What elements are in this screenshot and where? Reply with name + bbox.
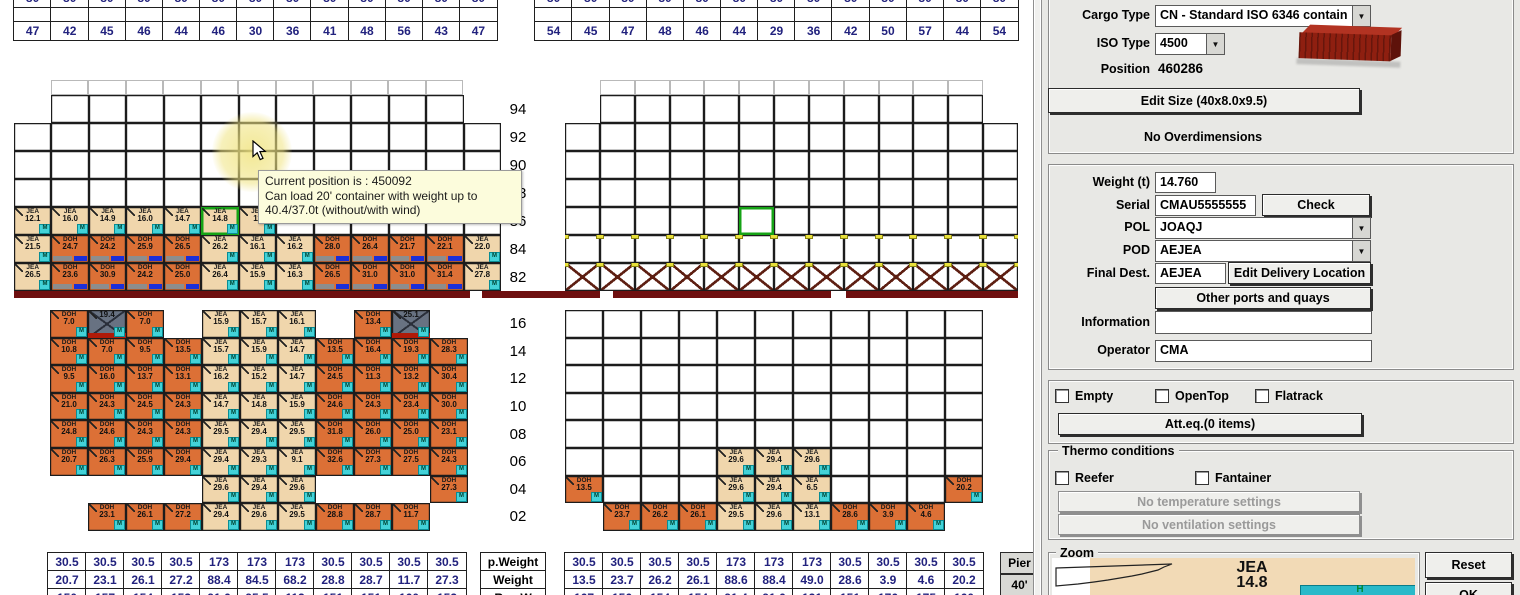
bay-cell[interactable] [907,448,945,476]
bay-cell[interactable] [641,476,679,504]
container-cell[interactable]: DOH13.1M [164,365,202,393]
bay-cell[interactable] [831,420,869,448]
bay-cell[interactable] [831,476,869,504]
selected-bay-cell[interactable] [739,207,774,235]
bay-cell[interactable] [844,179,879,207]
bay-cell[interactable] [948,179,983,207]
container-cell[interactable]: JEA15.7M [240,310,278,338]
container-cell[interactable]: DOH19.3M [392,338,430,366]
bay-cell[interactable] [314,123,351,151]
bay-cell[interactable] [879,123,914,151]
bay-cell[interactable] [879,207,914,235]
container-cell[interactable]: DOH26.2M [641,503,679,531]
bay-cell[interactable] [844,95,879,123]
container-cell[interactable]: JEA15.9M [202,310,240,338]
bay-cell[interactable] [739,123,774,151]
container-cell[interactable]: DOH27.3M [354,448,392,476]
container-cell[interactable]: 19.4M [88,310,126,338]
bay-cell[interactable] [844,235,879,263]
container-cell[interactable]: DOH29.4M [164,448,202,476]
bay-cell[interactable] [89,123,126,151]
container-cell[interactable]: JEA14.7M [278,338,316,366]
container-cell[interactable]: DOH13.5M [164,338,202,366]
selected-bay-cell[interactable]: JEA14.8M [201,207,238,235]
bay-cell[interactable] [670,151,705,179]
bay-cell[interactable] [14,123,51,151]
opentop-checkbox[interactable] [1155,389,1169,403]
bay-cell[interactable] [869,338,907,366]
bay-cell[interactable] [913,263,948,291]
container-cell[interactable]: 25.1M [392,310,430,338]
bay-cell[interactable] [679,338,717,366]
bay-cell[interactable] [755,310,793,338]
container-cell[interactable]: JEA16.3M [276,263,313,291]
container-cell[interactable]: DOH16.4M [354,338,392,366]
bay-cell[interactable] [983,151,1018,179]
bay-cell[interactable] [793,365,831,393]
container-cell[interactable]: DOH24.6M [88,420,126,448]
container-cell[interactable]: JEA9.1M [278,448,316,476]
container-cell[interactable]: DOH7.0M [88,338,126,366]
bay-cell[interactable] [679,393,717,421]
bay-cell[interactable] [670,123,705,151]
bay-cell[interactable] [879,179,914,207]
bay-cell[interactable] [426,123,463,151]
container-cell[interactable]: DOH16.0M [88,365,126,393]
bay-cell[interactable] [51,123,88,151]
container-cell[interactable]: JEA29.4M [240,476,278,504]
container-cell[interactable]: DOH4.6M [907,503,945,531]
container-cell[interactable]: JEA16.2M [202,365,240,393]
bay-cell[interactable] [793,338,831,366]
bay-cell[interactable] [603,476,641,504]
operator-input[interactable]: CMA [1155,340,1372,362]
container-cell[interactable]: DOH28.0 [314,235,351,263]
bay-cell[interactable] [869,420,907,448]
container-cell[interactable]: DOH26.5 [164,235,201,263]
bay-cell[interactable] [635,123,670,151]
bay-cell[interactable] [983,123,1018,151]
container-cell[interactable]: DOH24.3M [354,393,392,421]
bay-cell[interactable] [945,448,983,476]
bay-cell[interactable] [809,95,844,123]
bay-cell[interactable] [51,179,88,207]
bay-cell[interactable] [603,420,641,448]
bay-cell[interactable] [844,263,879,291]
bay-cell[interactable] [907,420,945,448]
bay-cell[interactable] [913,207,948,235]
bay-cell[interactable] [739,179,774,207]
bay-cell[interactable] [126,179,163,207]
bay-cell[interactable] [983,207,1018,235]
bay-cell[interactable] [565,263,600,291]
weight-input[interactable]: 14.760 [1155,172,1216,193]
container-cell[interactable]: JEA14.9M [89,207,126,235]
container-cell[interactable]: JEA29.5M [278,420,316,448]
bay-cell[interactable] [774,151,809,179]
container-cell[interactable]: DOH25.0 [164,263,201,291]
bay-cell[interactable] [879,263,914,291]
container-cell[interactable]: JEA29.6M [717,448,755,476]
flatrack-checkbox[interactable] [1255,389,1269,403]
bay-cell[interactable] [983,263,1018,291]
bay-cell[interactable] [164,95,201,123]
bay-cell[interactable] [831,448,869,476]
bay-cell[interactable] [793,310,831,338]
bay-cell[interactable] [89,151,126,179]
bay-cell[interactable] [600,207,635,235]
container-cell[interactable]: DOH30.0M [430,393,468,421]
bay-cell[interactable] [809,207,844,235]
serial-input[interactable]: CMAU5555555 [1155,195,1256,216]
bay-cell[interactable] [641,420,679,448]
container-cell[interactable]: DOH10.8M [50,338,88,366]
container-cell[interactable]: JEA26.4M [201,263,238,291]
bay-cell[interactable] [14,179,51,207]
bay-cell[interactable] [679,448,717,476]
container-cell[interactable]: JEA29.4M [755,448,793,476]
container-cell[interactable]: DOH20.2M [945,476,983,504]
container-cell[interactable]: DOH11.7M [392,503,430,531]
bay-cell[interactable] [755,393,793,421]
container-cell[interactable]: JEA15.2M [240,365,278,393]
container-cell[interactable]: JEA29.4M [202,448,240,476]
bay-cell[interactable] [945,393,983,421]
bay-cell[interactable] [717,365,755,393]
container-cell[interactable]: DOH30.4M [430,365,468,393]
container-cell[interactable]: DOH25.9 [126,235,163,263]
container-cell[interactable]: DOH26.4 [351,235,388,263]
bay-cell[interactable] [603,365,641,393]
bay-cell[interactable] [907,476,945,504]
bay-cell[interactable] [351,95,388,123]
bay-cell[interactable] [844,151,879,179]
container-cell[interactable]: JEA29.6M [278,476,316,504]
bay-cell[interactable] [314,95,351,123]
bay-cell[interactable] [635,151,670,179]
container-cell[interactable]: DOH26.3M [88,448,126,476]
fantainer-checkbox[interactable] [1195,471,1209,485]
bay-cell[interactable] [565,338,603,366]
container-cell[interactable]: JEA15.7M [202,338,240,366]
bay-cell[interactable] [869,365,907,393]
bay-cell[interactable] [600,151,635,179]
bay-cell[interactable] [913,95,948,123]
bay-cell[interactable] [879,151,914,179]
bay-cell[interactable] [717,420,755,448]
bay-cell[interactable] [276,95,313,123]
container-cell[interactable]: DOH31.8M [316,420,354,448]
bay-cell[interactable] [755,420,793,448]
bay-cell[interactable] [600,263,635,291]
bay-cell[interactable] [679,476,717,504]
bay-cell[interactable] [831,338,869,366]
bay-cell[interactable] [948,123,983,151]
bay-cell[interactable] [774,123,809,151]
container-cell[interactable]: DOH22.1 [426,235,463,263]
container-cell[interactable]: JEA12.1M [14,207,51,235]
container-cell[interactable]: DOH26.5 [314,263,351,291]
edit-delivery-location-button[interactable]: Edit Delivery Location [1228,262,1371,284]
container-cell[interactable]: DOH31.0 [351,263,388,291]
information-input[interactable] [1155,311,1372,334]
reset-button[interactable]: Reset [1425,552,1512,578]
bay-cell[interactable] [948,263,983,291]
bay-cell[interactable] [831,310,869,338]
bay-cell[interactable] [600,95,635,123]
bay-cell[interactable] [869,393,907,421]
container-cell[interactable]: JEA26.5M [14,263,51,291]
container-cell[interactable]: DOH24.8M [50,420,88,448]
container-cell[interactable]: DOH21.0M [50,393,88,421]
bay-cell[interactable] [641,393,679,421]
bay-cell[interactable] [603,448,641,476]
container-cell[interactable]: JEA26.2M [201,235,238,263]
bay-cell[interactable] [565,420,603,448]
bay-cell[interactable] [635,263,670,291]
bay-cell[interactable] [739,95,774,123]
bay-cell[interactable] [948,151,983,179]
container-cell[interactable]: JEA16.0M [51,207,88,235]
container-cell[interactable]: JEA29.6M [755,503,793,531]
bay-cell[interactable] [670,179,705,207]
container-cell[interactable]: JEA14.7M [164,207,201,235]
bay-cell[interactable] [945,420,983,448]
container-cell[interactable]: DOH3.9M [869,503,907,531]
container-cell[interactable]: DOH30.9 [89,263,126,291]
container-cell[interactable]: DOH28.6M [831,503,869,531]
bay-cell[interactable] [717,393,755,421]
bay-cell[interactable] [879,235,914,263]
container-cell[interactable]: DOH13.2M [392,365,430,393]
container-cell[interactable]: DOH24.3M [88,393,126,421]
attached-equipment-button[interactable]: Att.eq.(0 items) [1058,413,1362,435]
container-cell[interactable]: JEA13.1M [793,503,831,531]
container-cell[interactable]: DOH26.1M [126,503,164,531]
container-cell[interactable]: JEA29.5M [717,503,755,531]
bay-cell[interactable] [679,420,717,448]
bay-cell[interactable] [809,235,844,263]
container-cell[interactable]: DOH23.7M [603,503,641,531]
bay-cell[interactable] [983,179,1018,207]
container-cell[interactable]: DOH28.8M [316,503,354,531]
bay-cell[interactable] [565,151,600,179]
bay-cell[interactable] [603,393,641,421]
iso-type-select[interactable]: 4500 ▼ [1155,33,1225,55]
bay-cell[interactable] [844,207,879,235]
container-cell[interactable]: DOH31.4 [426,263,463,291]
container-cell[interactable]: DOH13.7M [126,365,164,393]
bay-cell[interactable] [670,207,705,235]
bay-cell[interactable] [565,207,600,235]
bay-cell[interactable] [389,95,426,123]
bay-cell[interactable] [774,207,809,235]
container-cell[interactable]: JEA15.9M [240,338,278,366]
bay-cell[interactable] [809,151,844,179]
container-cell[interactable]: JEA29.5M [278,503,316,531]
bay-cell[interactable] [913,235,948,263]
bay-cell[interactable] [809,123,844,151]
bay-cell[interactable] [739,235,774,263]
bay-cell[interactable] [907,365,945,393]
container-cell[interactable]: DOH27.2M [164,503,202,531]
container-cell[interactable]: DOH21.7 [389,235,426,263]
container-cell[interactable]: JEA14.7M [278,365,316,393]
container-cell[interactable]: DOH20.7M [50,448,88,476]
container-cell[interactable]: DOH23.6 [51,263,88,291]
bay-cell[interactable] [774,179,809,207]
bay-cell[interactable] [704,123,739,151]
bay-cell[interactable] [739,263,774,291]
container-cell[interactable]: DOH25.0M [392,420,430,448]
bay-cell[interactable] [351,123,388,151]
bay-cell[interactable] [831,393,869,421]
bay-cell[interactable] [89,179,126,207]
bay-cell[interactable] [635,179,670,207]
bay-cell[interactable] [704,179,739,207]
container-cell[interactable]: DOH24.5M [126,393,164,421]
container-cell[interactable]: JEA16.0M [126,207,163,235]
container-cell[interactable]: DOH24.3M [430,448,468,476]
bay-cell[interactable] [670,95,705,123]
bay-cell[interactable] [774,95,809,123]
bay-cell[interactable] [869,310,907,338]
container-cell[interactable]: JEA14.7M [202,393,240,421]
container-cell[interactable]: JEA16.2M [276,235,313,263]
bay-cell[interactable] [603,310,641,338]
bay-cell[interactable] [670,263,705,291]
bay-cell[interactable] [948,95,983,123]
container-cell[interactable]: JEA29.4M [240,420,278,448]
container-cell[interactable]: DOH24.3M [164,393,202,421]
container-cell[interactable]: DOH27.5M [392,448,430,476]
bay-cell[interactable] [679,310,717,338]
bay-cell[interactable] [565,179,600,207]
bay-cell[interactable] [600,123,635,151]
container-cell[interactable]: JEA21.5M [14,235,51,263]
container-cell[interactable]: DOH28.7M [354,503,392,531]
bay-cell[interactable] [809,179,844,207]
pod-select[interactable]: AEJEA ▼ [1155,240,1371,262]
bay-cell[interactable] [641,448,679,476]
container-cell[interactable]: JEA15.9M [239,263,276,291]
final-dest-input[interactable]: AEJEA [1155,263,1226,284]
bay-cell[interactable] [704,263,739,291]
container-cell[interactable]: DOH26.1M [679,503,717,531]
container-cell[interactable]: DOH23.4M [392,393,430,421]
bay-cell[interactable] [774,235,809,263]
container-cell[interactable]: JEA29.6M [717,476,755,504]
container-cell[interactable]: DOH11.3M [354,365,392,393]
bay-cell[interactable] [51,95,88,123]
container-cell[interactable]: DOH24.2 [89,235,126,263]
bay-cell[interactable] [755,365,793,393]
container-cell[interactable]: JEA29.6M [240,503,278,531]
bay-cell[interactable] [641,310,679,338]
container-cell[interactable]: DOH24.2 [126,263,163,291]
container-cell[interactable]: JEA15.9M [278,393,316,421]
bay-cell[interactable] [793,420,831,448]
bay-cell[interactable] [879,95,914,123]
bay-cell[interactable] [641,338,679,366]
bay-cell[interactable] [774,263,809,291]
bay-cell[interactable] [641,365,679,393]
bay-cell[interactable] [907,310,945,338]
container-cell[interactable]: DOH13.5M [316,338,354,366]
bay-cell[interactable] [670,235,705,263]
container-cell[interactable]: JEA29.6M [793,448,831,476]
bay-cell[interactable] [831,365,869,393]
bay-cell[interactable] [945,338,983,366]
edit-size-button[interactable]: Edit Size (40x8.0x9.5) [1048,88,1360,113]
container-cell[interactable]: JEA6.5M [793,476,831,504]
bay-cell[interactable] [565,393,603,421]
container-cell[interactable]: DOH24.6M [316,393,354,421]
bay-cell[interactable] [635,235,670,263]
ok-button[interactable]: OK [1425,582,1512,595]
bay-cell[interactable] [565,235,600,263]
bay-cell[interactable] [635,95,670,123]
container-cell[interactable]: DOH23.1M [88,503,126,531]
bay-cell[interactable] [565,365,603,393]
bay-cell[interactable] [907,393,945,421]
bay-cell[interactable] [869,448,907,476]
bay-cell[interactable] [600,235,635,263]
bay-cell[interactable] [704,207,739,235]
bay-cell[interactable] [565,123,600,151]
container-cell[interactable]: DOH24.3M [164,420,202,448]
container-cell[interactable]: DOH31.0 [389,263,426,291]
bay-cell[interactable] [14,151,51,179]
bay-cell[interactable] [565,310,603,338]
bay-cell[interactable] [755,338,793,366]
container-cell[interactable]: JEA29.5M [202,420,240,448]
bay-cell[interactable] [704,235,739,263]
bay-cell[interactable] [464,123,501,151]
container-cell[interactable]: DOH32.6M [316,448,354,476]
container-cell[interactable]: JEA16.1M [239,235,276,263]
container-cell[interactable]: DOH24.7 [51,235,88,263]
container-cell[interactable]: DOH13.4M [354,310,392,338]
container-cell[interactable]: JEA29.6M [202,476,240,504]
container-cell[interactable]: DOH24.3M [126,420,164,448]
bay-cell[interactable] [809,263,844,291]
bay-cell[interactable] [948,207,983,235]
bay-cell[interactable] [907,338,945,366]
bay-cell[interactable] [844,123,879,151]
bay-cell[interactable] [913,123,948,151]
container-cell[interactable]: JEA29.3M [240,448,278,476]
bay-cell[interactable] [126,151,163,179]
bay-cell[interactable] [945,365,983,393]
container-cell[interactable]: DOH9.5M [50,365,88,393]
panel-splitter[interactable] [1033,0,1042,595]
container-cell[interactable]: DOH7.0M [126,310,164,338]
bay-cell[interactable] [869,476,907,504]
bay-cell[interactable] [635,207,670,235]
bay-cell[interactable] [389,123,426,151]
container-cell[interactable]: DOH28.3M [430,338,468,366]
container-cell[interactable]: JEA29.4M [755,476,793,504]
bay-cell[interactable] [51,151,88,179]
bay-cell[interactable] [983,235,1018,263]
bay-cell[interactable] [717,338,755,366]
pol-select[interactable]: JOAQJ ▼ [1155,217,1371,239]
bay-cell[interactable] [164,179,201,207]
container-cell[interactable]: JEA16.1M [278,310,316,338]
bay-cell[interactable] [164,123,201,151]
container-cell[interactable]: DOH13.5M [565,476,603,504]
